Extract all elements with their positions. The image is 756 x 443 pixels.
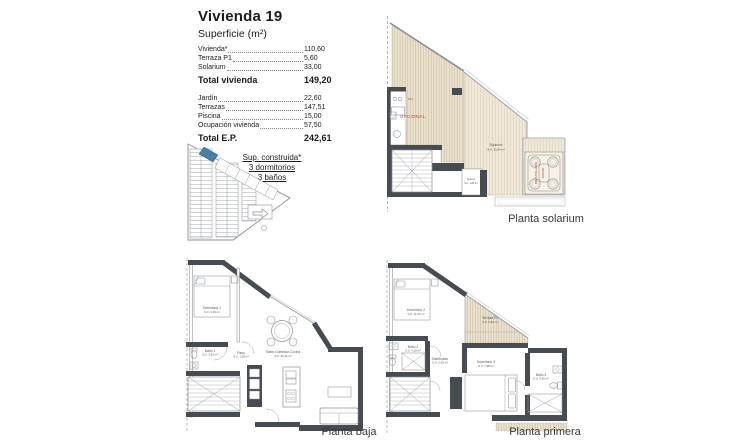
hueco-area: S.U. 1,80 m² xyxy=(464,182,478,185)
room-area-bano2: S.U. 4,20 m² xyxy=(405,349,421,353)
room-area-bano3: S.U. 5,40 m² xyxy=(533,377,549,381)
exterior-row: Ocupación vivienda 57,50 xyxy=(198,121,350,130)
surface-subtitle: Superficie (m²) xyxy=(198,28,350,40)
surface-row: Terraza P1 5,60 xyxy=(198,54,350,63)
total-value: 149,20 xyxy=(304,74,350,86)
row-value: 33,00 xyxy=(304,63,350,72)
row-value: 15,00 xyxy=(304,112,350,121)
room-area-distribuidor: S.U. 2,63 m² xyxy=(432,361,448,365)
bed-dormitorio3 xyxy=(465,375,517,411)
exterior-row: Terrazas 147,51 xyxy=(198,103,350,112)
row-value: 110,60 xyxy=(304,45,350,54)
kitchen-island xyxy=(283,367,300,407)
jacuzzi: PREINSTALACIÓN JACUZZI xyxy=(525,152,563,194)
room-area-dormitorio2: S.U. 11,63 m² xyxy=(407,312,424,316)
row-leader xyxy=(260,128,303,129)
row-leader xyxy=(228,52,303,53)
sofa xyxy=(320,387,358,424)
row-label: Terraza P1 xyxy=(198,54,232,63)
page-title: Vivienda 19 xyxy=(198,8,350,25)
room-area-terraza: S.U. 5,60 m² xyxy=(482,320,498,324)
row-label: Solarium xyxy=(198,63,226,72)
room-area-salon: S.U. 23,41 m² xyxy=(274,354,291,358)
dining-table xyxy=(267,316,297,346)
row-value: 22,60 xyxy=(304,94,350,103)
site-plots xyxy=(190,149,278,238)
row-value: 57,50 xyxy=(304,121,350,130)
exterior-group: Jardín 22,60 Terrazas 147,51 Piscina 15,… xyxy=(198,94,350,144)
caption-planta-solarium: Planta solarium xyxy=(500,213,592,225)
site-plan xyxy=(176,141,294,241)
room-label-solarium: Solarium xyxy=(489,143,502,147)
total-value: 242,61 xyxy=(304,132,350,144)
room-area-dormitorio3: S.U. 7,98 m² xyxy=(478,364,494,368)
row-leader xyxy=(233,61,303,62)
hueco-label: Hueco xyxy=(467,177,476,181)
caption-planta-primera: Planta primera xyxy=(499,426,591,438)
planta-baja-plan: Dormitorio 1 S.U. 9,29 m² Baño 1 S.U. 3,… xyxy=(186,248,396,440)
lower-terrace-strip xyxy=(495,197,565,206)
row-leader xyxy=(226,110,303,111)
row-leader xyxy=(222,119,303,120)
surface-total-row: Total vivienda 149,20 xyxy=(198,74,350,86)
row-leader xyxy=(227,70,303,71)
bbq-label: BBQ xyxy=(408,99,413,101)
exterior-row: Jardín 22,60 xyxy=(198,94,350,103)
room-area-dormitorio1: S.U. 9,29 m² xyxy=(204,310,220,314)
jacuzzi-label-2: JACUZZI xyxy=(541,167,545,178)
hueco-room: Hueco S.U. 1,80 m² xyxy=(462,169,487,197)
room-area-bano1: S.U. 3,52 m² xyxy=(202,353,218,357)
row-label: Ocupación vivienda xyxy=(198,121,259,130)
row-value: 147,51 xyxy=(304,103,350,112)
row-label: Piscina xyxy=(198,112,221,121)
kitchen-column xyxy=(247,365,262,407)
exterior-row: Piscina 15,00 xyxy=(198,112,350,121)
surface-row: Solarium 33,00 xyxy=(198,63,350,72)
row-leader xyxy=(218,101,303,102)
room-area-paso: S.U. 1,28 m² xyxy=(233,355,249,359)
plan-sheet: Vivienda 19 Superficie (m²) Vivienda* 11… xyxy=(0,0,756,443)
stairs xyxy=(392,150,432,192)
planta-primera-plan: Dormitorio 2 S.U. 11,63 m² Terraza P1 S.… xyxy=(386,248,656,440)
opcional-label: OPCIONAL xyxy=(400,114,426,119)
stairs xyxy=(390,377,440,411)
room-area-solarium: S.U. 33,00 m² xyxy=(487,148,504,152)
total-label: Total vivienda xyxy=(198,74,304,86)
planta-solarium-plan: BBQ Hueco xyxy=(386,12,646,226)
stairs xyxy=(188,377,240,411)
row-label: Jardín xyxy=(198,94,217,103)
row-value: 5,60 xyxy=(304,54,350,63)
row-label: Vivienda* xyxy=(198,45,227,54)
caption-planta-baja: Planta baja xyxy=(303,426,395,438)
row-label: Terrazas xyxy=(198,103,225,112)
surface-row: Vivienda* 110,60 xyxy=(198,45,350,54)
